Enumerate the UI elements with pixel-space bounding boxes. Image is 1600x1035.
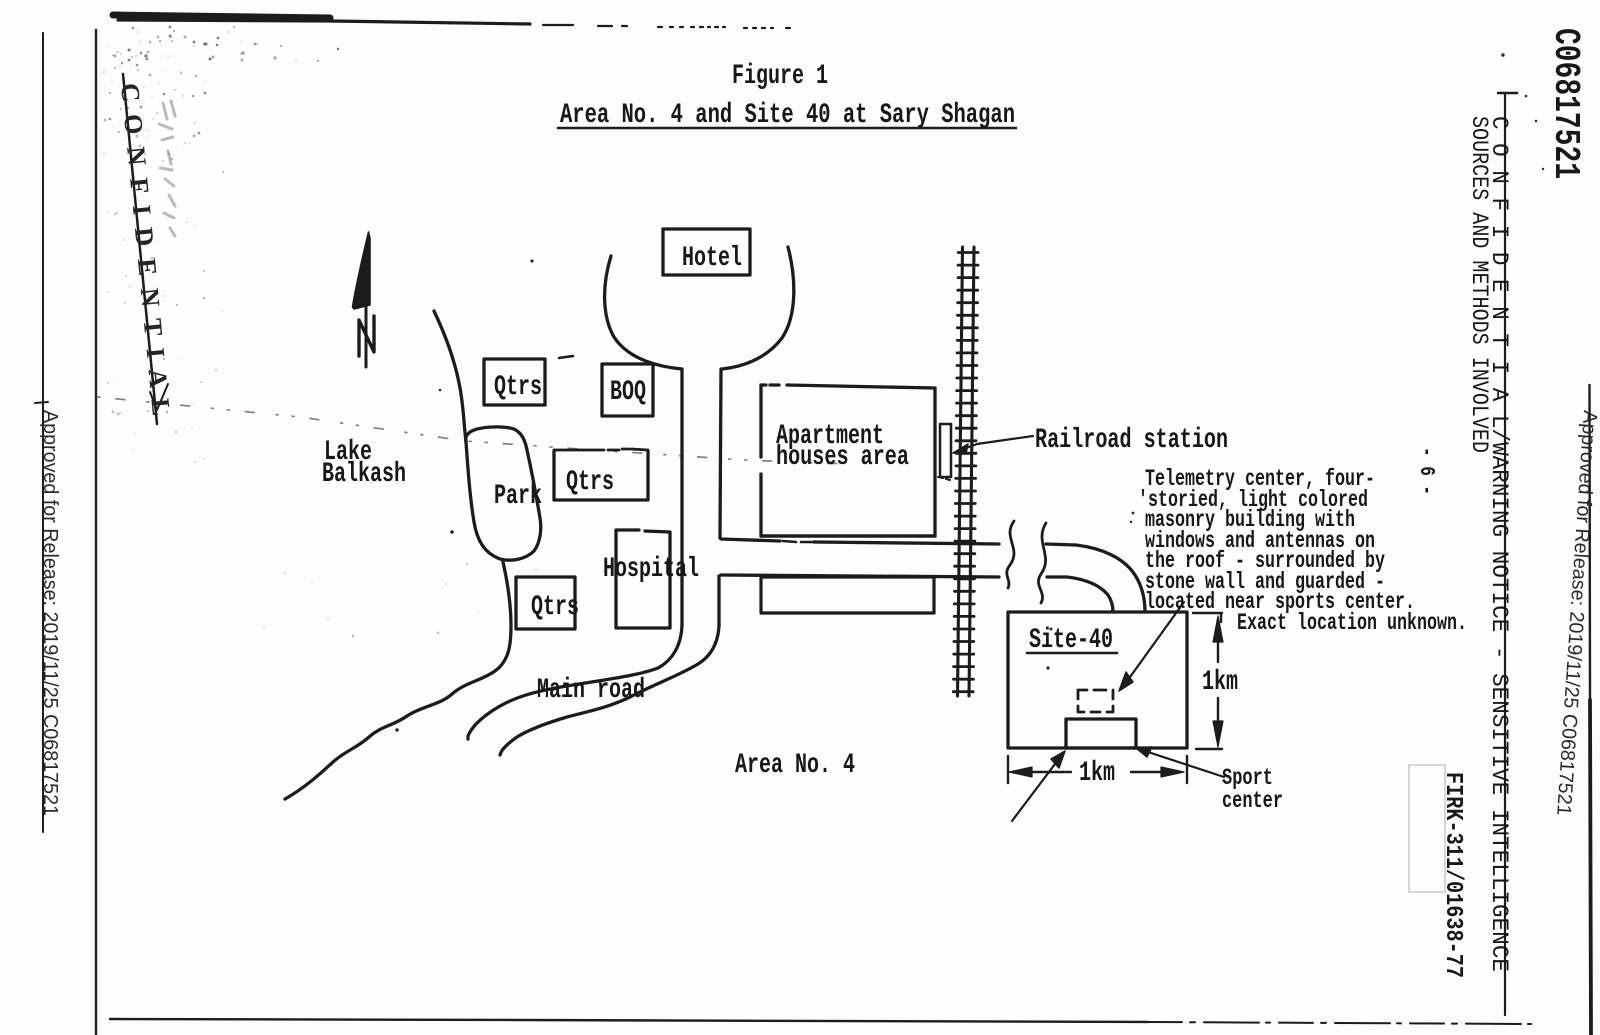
svg-text:Balkash: Balkash bbox=[322, 459, 406, 490]
svg-text:Figure 1: Figure 1 bbox=[732, 61, 828, 92]
svg-text:1km: 1km bbox=[1202, 667, 1238, 698]
svg-text:SOURCES AND METHODS INVOLVED: SOURCES AND METHODS INVOLVED bbox=[1466, 116, 1492, 453]
svg-text:Main road: Main road bbox=[537, 675, 645, 706]
svg-text:Qtrs: Qtrs bbox=[531, 592, 579, 623]
svg-text:Approved for Release: 2019/11/: Approved for Release: 2019/11/25 C068175… bbox=[1552, 410, 1600, 817]
svg-text:C O N F I D E N T I A L: C O N F I D E N T I A L bbox=[115, 82, 176, 417]
svg-text:C06817521: C06817521 bbox=[1545, 28, 1586, 179]
svg-text:- 6 -: - 6 - bbox=[1414, 447, 1437, 495]
svg-text:Exact location unknown.: Exact location unknown. bbox=[1237, 610, 1467, 636]
svg-text:Site-40: Site-40 bbox=[1029, 625, 1113, 656]
svg-text:Qtrs: Qtrs bbox=[566, 467, 614, 498]
svg-text:Area No. 4 and Site 40 at Sary: Area No. 4 and Site 40 at Sary Shagan bbox=[560, 100, 1015, 131]
svg-text:1km: 1km bbox=[1079, 758, 1115, 789]
svg-text:FIRK-311/01638-77: FIRK-311/01638-77 bbox=[1439, 772, 1466, 978]
svg-text:Qtrs: Qtrs bbox=[494, 372, 542, 403]
svg-text:BOQ: BOQ bbox=[610, 377, 646, 408]
svg-text:Park: Park bbox=[494, 481, 542, 512]
svg-text:Approved for Release: 2019/11/: Approved for Release: 2019/11/25 C068175… bbox=[39, 410, 61, 816]
svg-text:houses area: houses area bbox=[776, 442, 909, 473]
svg-text:Hotel: Hotel bbox=[682, 243, 742, 274]
svg-text:Area No. 4: Area No. 4 bbox=[735, 750, 855, 781]
svg-text:center: center bbox=[1222, 788, 1283, 814]
svg-text:Hospital: Hospital bbox=[603, 554, 699, 585]
svg-text:Railroad station: Railroad station bbox=[1035, 425, 1228, 456]
